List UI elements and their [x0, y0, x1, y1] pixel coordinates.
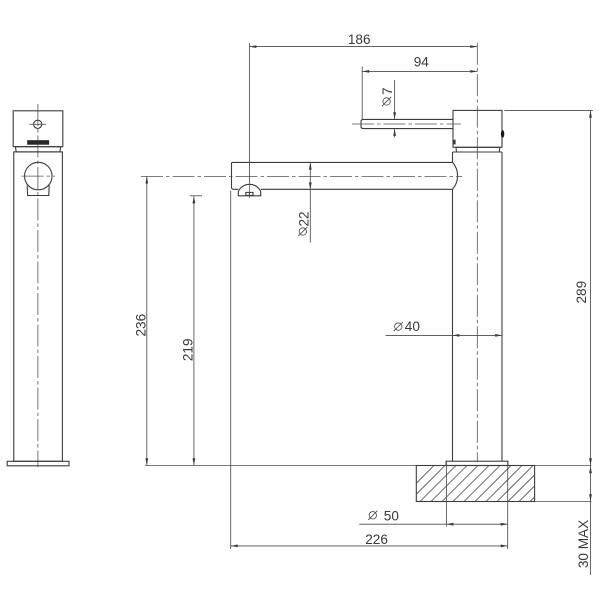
svg-text:7: 7 — [380, 87, 395, 95]
svg-text:289: 289 — [574, 281, 589, 304]
svg-text:40: 40 — [405, 319, 421, 334]
svg-text:22: 22 — [296, 211, 311, 226]
svg-text:30 MAX: 30 MAX — [576, 520, 591, 568]
svg-text:186: 186 — [348, 32, 371, 47]
svg-text:219: 219 — [180, 338, 195, 361]
svg-text:50: 50 — [384, 508, 400, 523]
svg-text:PHOENIX: PHOENIX — [28, 140, 48, 145]
svg-text:226: 226 — [365, 532, 388, 547]
svg-text:94: 94 — [414, 55, 430, 70]
svg-text:236: 236 — [133, 314, 148, 337]
